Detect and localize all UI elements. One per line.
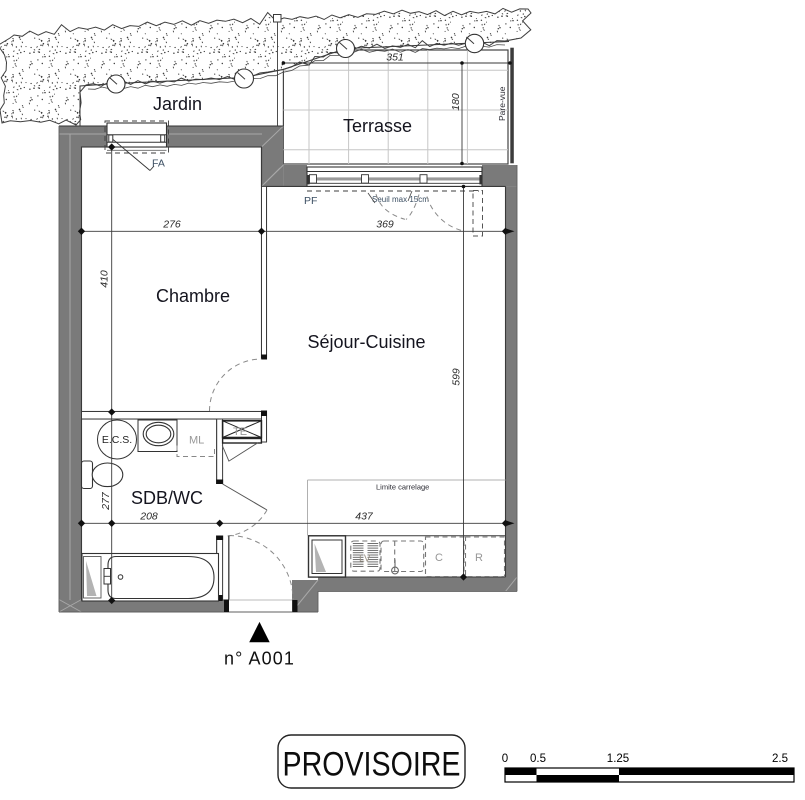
svg-text:Terrasse: Terrasse (343, 116, 412, 136)
svg-text:Séjour-Cuisine: Séjour-Cuisine (308, 332, 426, 352)
svg-text:277: 277 (100, 491, 112, 511)
svg-text:FA: FA (152, 158, 165, 170)
svg-text:180: 180 (450, 93, 462, 111)
svg-text:437: 437 (355, 511, 374, 523)
svg-text:410: 410 (99, 270, 111, 288)
svg-text:n° A001: n° A001 (224, 649, 295, 669)
svg-text:276: 276 (162, 219, 181, 231)
svg-text:599: 599 (451, 368, 463, 386)
svg-text:1.25: 1.25 (607, 753, 629, 765)
svg-text:2.5: 2.5 (772, 753, 788, 765)
svg-text:SDB/WC: SDB/WC (131, 488, 203, 508)
svg-text:PROVISOIRE: PROVISOIRE (283, 746, 461, 784)
svg-text:0: 0 (502, 753, 508, 765)
svg-text:369: 369 (376, 219, 394, 231)
svg-text:208: 208 (139, 511, 158, 523)
svg-text:ML: ML (189, 435, 204, 447)
svg-text:351: 351 (386, 52, 404, 64)
svg-text:Chambre: Chambre (156, 286, 230, 306)
svg-text:TE: TE (233, 426, 247, 438)
svg-text:R: R (475, 552, 483, 564)
svg-text:Jardin: Jardin (153, 94, 202, 114)
svg-text:LV: LV (359, 554, 371, 565)
svg-text:Pare-vue: Pare-vue (497, 86, 507, 121)
svg-text:C: C (435, 552, 443, 564)
svg-text:0.5: 0.5 (530, 753, 546, 765)
svg-text:E.C.S.: E.C.S. (102, 434, 132, 446)
svg-text:Seuil max 15cm: Seuil max 15cm (372, 195, 429, 204)
svg-text:Limite carrelage: Limite carrelage (376, 483, 429, 492)
svg-text:PF: PF (304, 195, 317, 207)
